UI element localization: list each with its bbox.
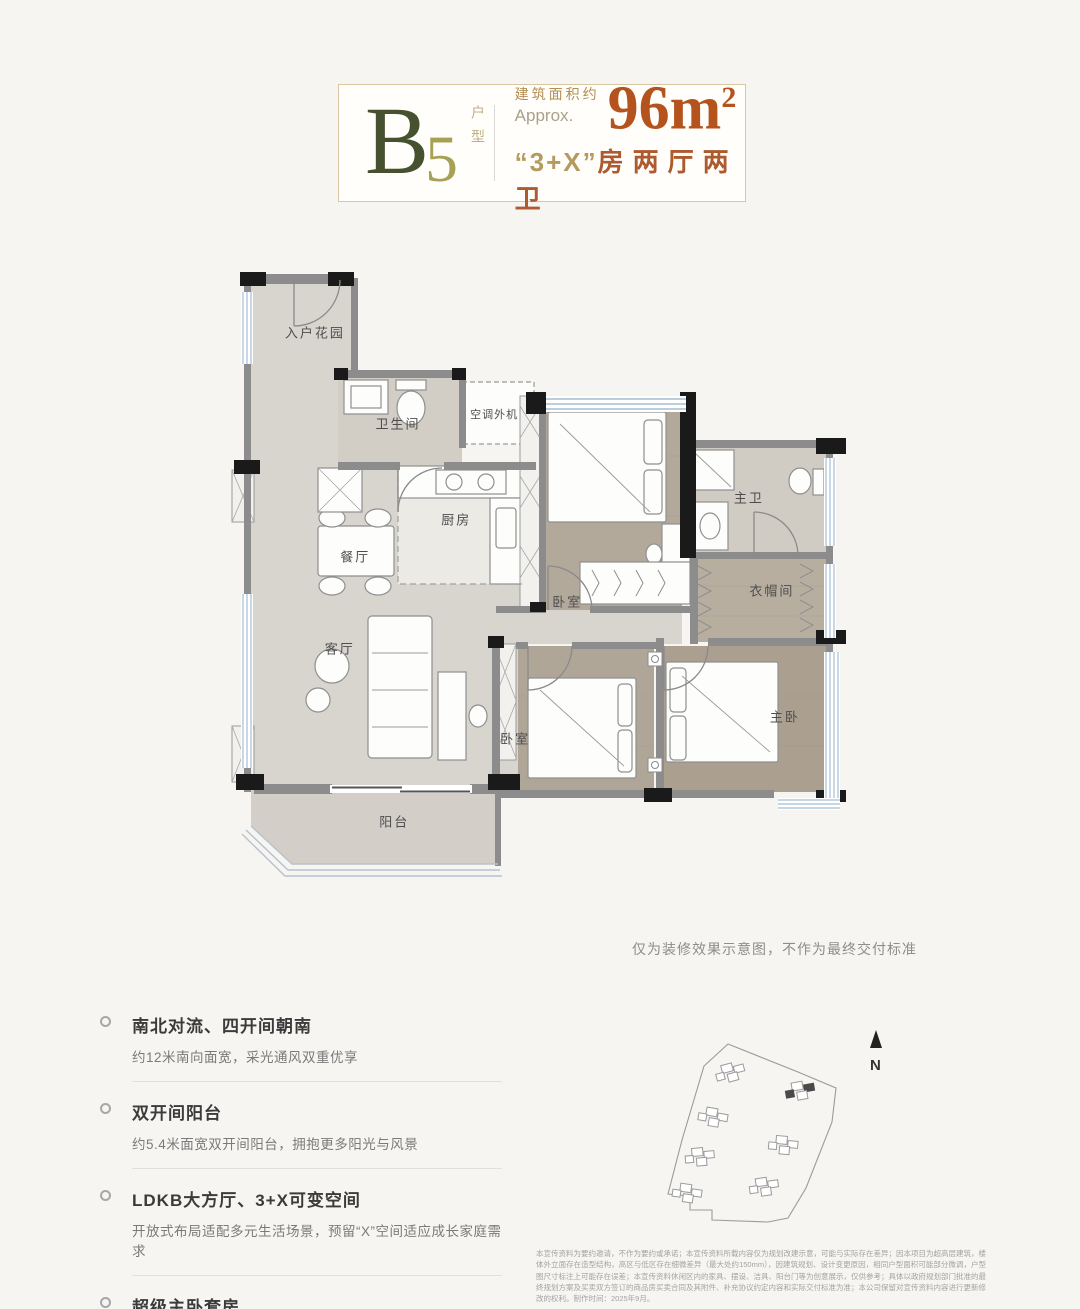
legal-disclaimer: 本宣传资料为要约邀请，不作为要约或承诺；本宣传资料所载内容仅为规划改建示意，可能… bbox=[536, 1248, 986, 1304]
layout-description: “3+X”房两厅两卫 bbox=[515, 142, 745, 216]
room-label-living-room: 客厅 bbox=[325, 639, 355, 658]
feature-title: 南北对流、四开间朝南 bbox=[132, 1012, 502, 1037]
feature-title: 双开间阳台 bbox=[132, 1099, 502, 1124]
feature-description: 开放式布局适配多元生活场景，预留“X”空间适应成长家庭需求 bbox=[132, 1220, 502, 1260]
site-plan: N bbox=[648, 1022, 904, 1246]
room-label-balcony: 阳台 bbox=[379, 811, 409, 830]
unit-letter: B bbox=[365, 93, 429, 189]
feature-divider bbox=[132, 1168, 502, 1169]
room-label-dining-room: 餐厅 bbox=[340, 547, 370, 566]
feature-item: 超级主卧套房 配置步入式衣帽间与270°转角飘窗，私密性与舒适感兼得 bbox=[98, 1293, 502, 1309]
unit-number: 5 bbox=[425, 127, 458, 193]
area-label-en: Approx. bbox=[515, 106, 600, 126]
layout-quote-part: “3+X” bbox=[515, 147, 598, 177]
feature-item: LDKB大方厅、3+X可变空间 开放式布局适配多元生活场景，预留“X”空间适应成… bbox=[98, 1186, 502, 1276]
area-number: 96m bbox=[608, 74, 722, 142]
floor-plan: 入户花园 卫生间 空调外机 厨房 餐厅 客厅 阳台 卧室 主卫 衣帽间 卧室 主… bbox=[230, 266, 850, 914]
area-sup: 2 bbox=[721, 81, 736, 114]
feature-item: 双开间阳台 约5.4米面宽双开间阳台，拥抱更多阳光与风景 bbox=[98, 1099, 502, 1169]
unit-header-box: B 5 户型 建筑面积约 Approx. 96m2 “3+X”房两厅两卫 bbox=[338, 84, 746, 202]
room-label-bathroom: 卫生间 bbox=[376, 413, 421, 432]
feature-list: 南北对流、四开间朝南 约12米南向面宽，采光通风双重优享 双开间阳台 约5.4米… bbox=[98, 1012, 502, 1309]
room-label-walk-in-closet: 衣帽间 bbox=[749, 581, 794, 600]
feature-description: 约12米南向面宽，采光通风双重优享 bbox=[132, 1046, 502, 1066]
room-label-bedroom-1: 卧室 bbox=[552, 592, 582, 611]
floor-plan-poster: B 5 户型 建筑面积约 Approx. 96m2 “3+X”房两厅两卫 bbox=[0, 0, 1080, 1309]
north-label: N bbox=[870, 1057, 881, 1074]
feature-title: 超级主卧套房 bbox=[132, 1293, 502, 1309]
room-label-master-bathroom: 主卫 bbox=[734, 487, 764, 506]
unit-code: B 5 户型 bbox=[339, 93, 492, 193]
feature-description: 约5.4米面宽双开间阳台，拥抱更多阳光与风景 bbox=[132, 1133, 502, 1153]
feature-divider bbox=[132, 1275, 502, 1276]
area-label-cn: 建筑面积约 bbox=[515, 84, 600, 104]
room-label-ac-unit: 空调外机 bbox=[470, 406, 518, 422]
north-arrow-icon: N bbox=[870, 1030, 882, 1074]
room-label-bedroom-2: 卧室 bbox=[500, 728, 530, 747]
plan-disclaimer-note: 仅为装修效果示意图，不作为最终交付标准 bbox=[632, 939, 917, 959]
unit-type-vertical-label: 户型 bbox=[468, 105, 488, 153]
bullet-ring-icon bbox=[100, 1297, 111, 1308]
area-value: 96m2 bbox=[608, 70, 737, 137]
site-plan-drawing: N bbox=[648, 1022, 904, 1246]
bullet-ring-icon bbox=[100, 1103, 111, 1114]
feature-item: 南北对流、四开间朝南 约12米南向面宽，采光通风双重优享 bbox=[98, 1012, 502, 1082]
highlighted-building bbox=[784, 1079, 816, 1102]
room-label-entry-garden: 入户花园 bbox=[285, 323, 345, 342]
feature-title: LDKB大方厅、3+X可变空间 bbox=[132, 1186, 502, 1211]
room-label-kitchen: 厨房 bbox=[441, 509, 471, 528]
bullet-ring-icon bbox=[100, 1016, 111, 1027]
room-label-master-bedroom: 主卧 bbox=[770, 706, 800, 725]
bullet-ring-icon bbox=[100, 1190, 111, 1201]
feature-divider bbox=[132, 1081, 502, 1082]
